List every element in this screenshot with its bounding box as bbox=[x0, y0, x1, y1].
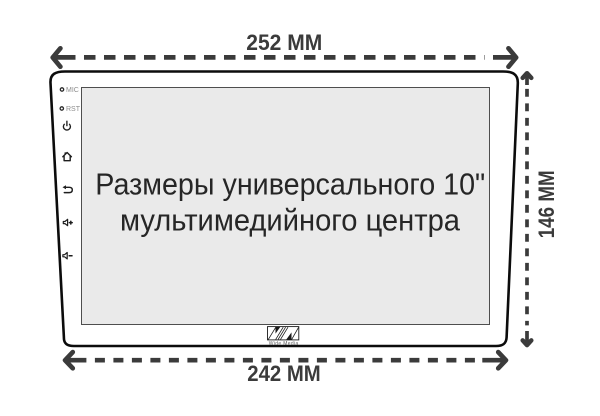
svg-text:RST: RST bbox=[66, 106, 81, 113]
svg-text:MIC: MIC bbox=[66, 87, 79, 94]
svg-text:146 ММ: 146 ММ bbox=[534, 170, 559, 238]
svg-text:252 ММ: 252 ММ bbox=[246, 30, 322, 55]
svg-text:мультимедийного центра: мультимедийного центра bbox=[120, 203, 461, 238]
svg-text:242 ММ: 242 ММ bbox=[247, 361, 321, 386]
svg-text:Размеры универсального 10": Размеры универсального 10" bbox=[95, 167, 485, 202]
svg-text:Wide Media: Wide Media bbox=[269, 341, 299, 347]
